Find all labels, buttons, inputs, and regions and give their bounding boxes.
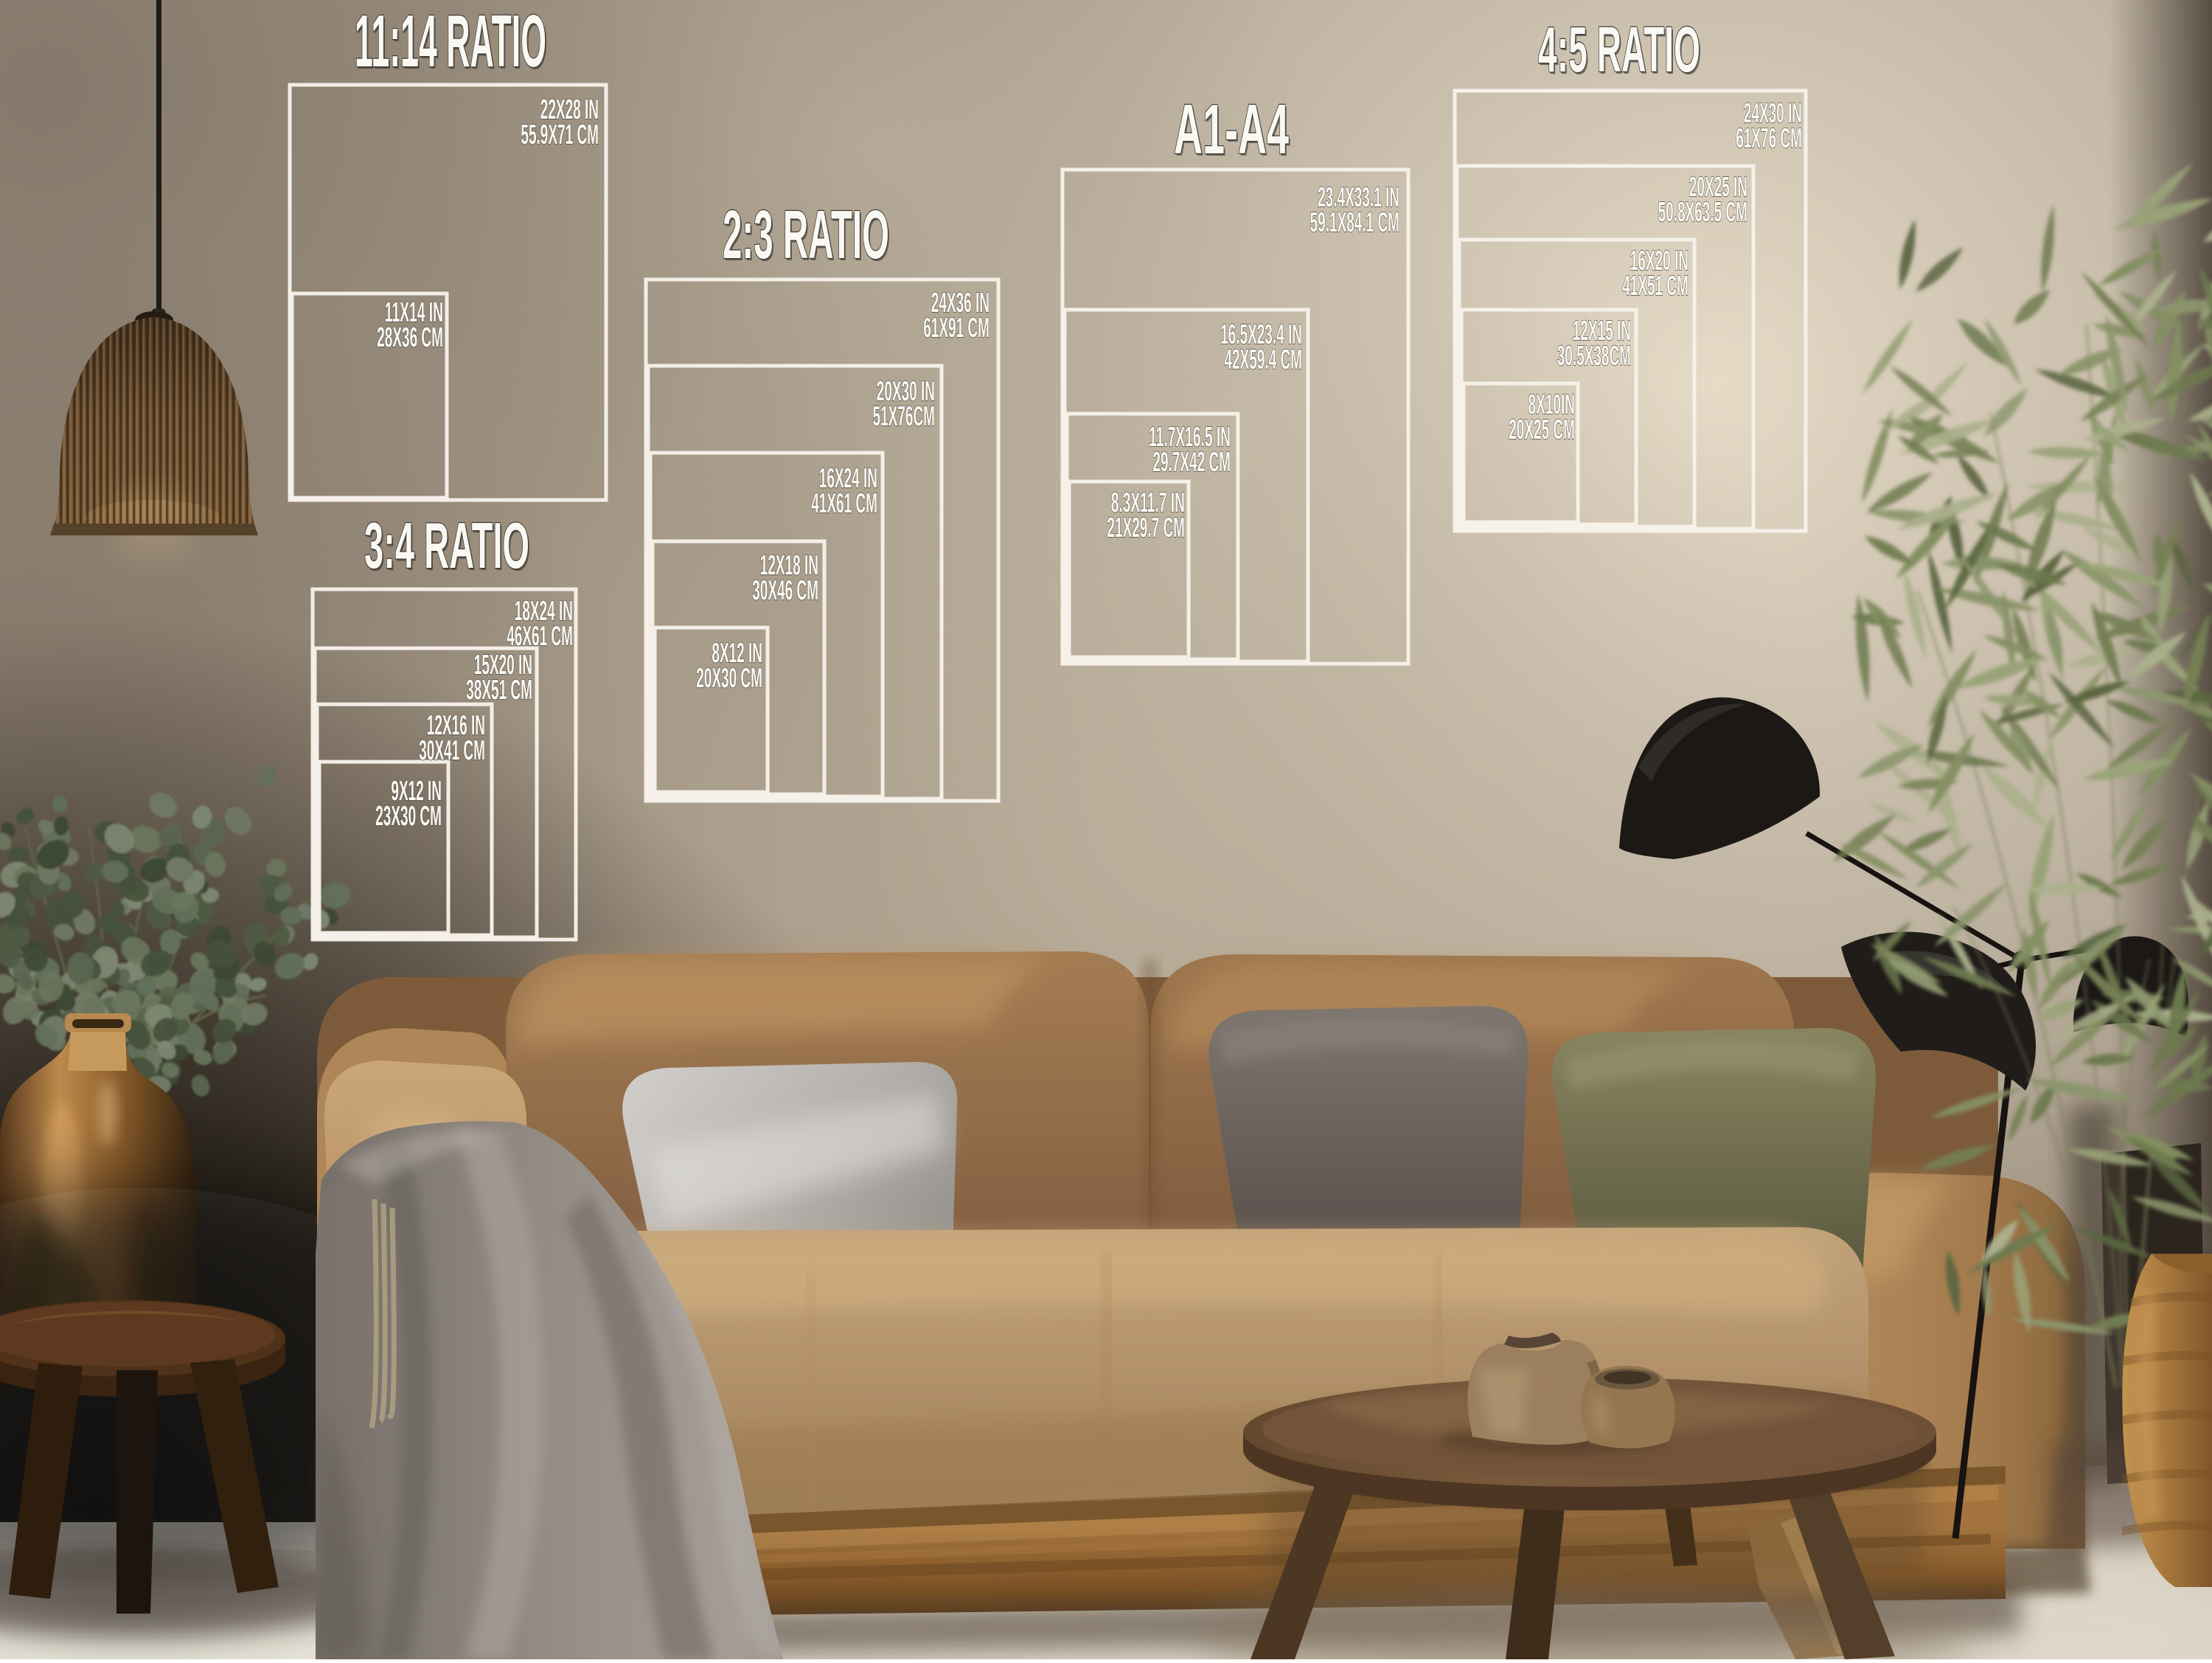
svg-text:21X29.7 CM: 21X29.7 CM [1107, 513, 1185, 544]
svg-text:50.8X63.5 CM: 50.8X63.5 CM [1658, 197, 1747, 228]
svg-text:4:5 RATIO: 4:5 RATIO [1538, 14, 1700, 86]
svg-text:28X36 CM: 28X36 CM [377, 322, 443, 353]
svg-text:29.7X42 CM: 29.7X42 CM [1152, 447, 1231, 478]
svg-text:41X61 CM: 41X61 CM [811, 488, 877, 519]
svg-text:23X30 CM: 23X30 CM [375, 801, 442, 832]
svg-text:59.1X84.1 CM: 59.1X84.1 CM [1310, 207, 1399, 238]
svg-text:42X59.4 CM: 42X59.4 CM [1224, 344, 1302, 375]
svg-text:20X30 CM: 20X30 CM [696, 663, 762, 694]
svg-text:30X41 CM: 30X41 CM [419, 735, 485, 766]
svg-text:55.9X71 CM: 55.9X71 CM [521, 119, 599, 150]
svg-text:46X61 CM: 46X61 CM [507, 621, 573, 652]
svg-text:61X91 CM: 61X91 CM [923, 313, 990, 344]
svg-text:A1-A4: A1-A4 [1174, 90, 1289, 169]
svg-text:2:3 RATIO: 2:3 RATIO [723, 196, 889, 273]
svg-text:3:4 RATIO: 3:4 RATIO [364, 509, 529, 582]
svg-text:51X76CM: 51X76CM [873, 401, 936, 432]
svg-text:30.5X38CM: 30.5X38CM [1557, 341, 1631, 372]
svg-text:61X76 CM: 61X76 CM [1736, 123, 1802, 154]
svg-text:38X51 CM: 38X51 CM [466, 675, 532, 706]
svg-text:30X46 CM: 30X46 CM [752, 575, 818, 606]
svg-text:11:14 RATIO: 11:14 RATIO [355, 0, 546, 83]
svg-text:41X51 CM: 41X51 CM [1622, 271, 1688, 302]
svg-text:20X25 CM: 20X25 CM [1509, 414, 1575, 445]
